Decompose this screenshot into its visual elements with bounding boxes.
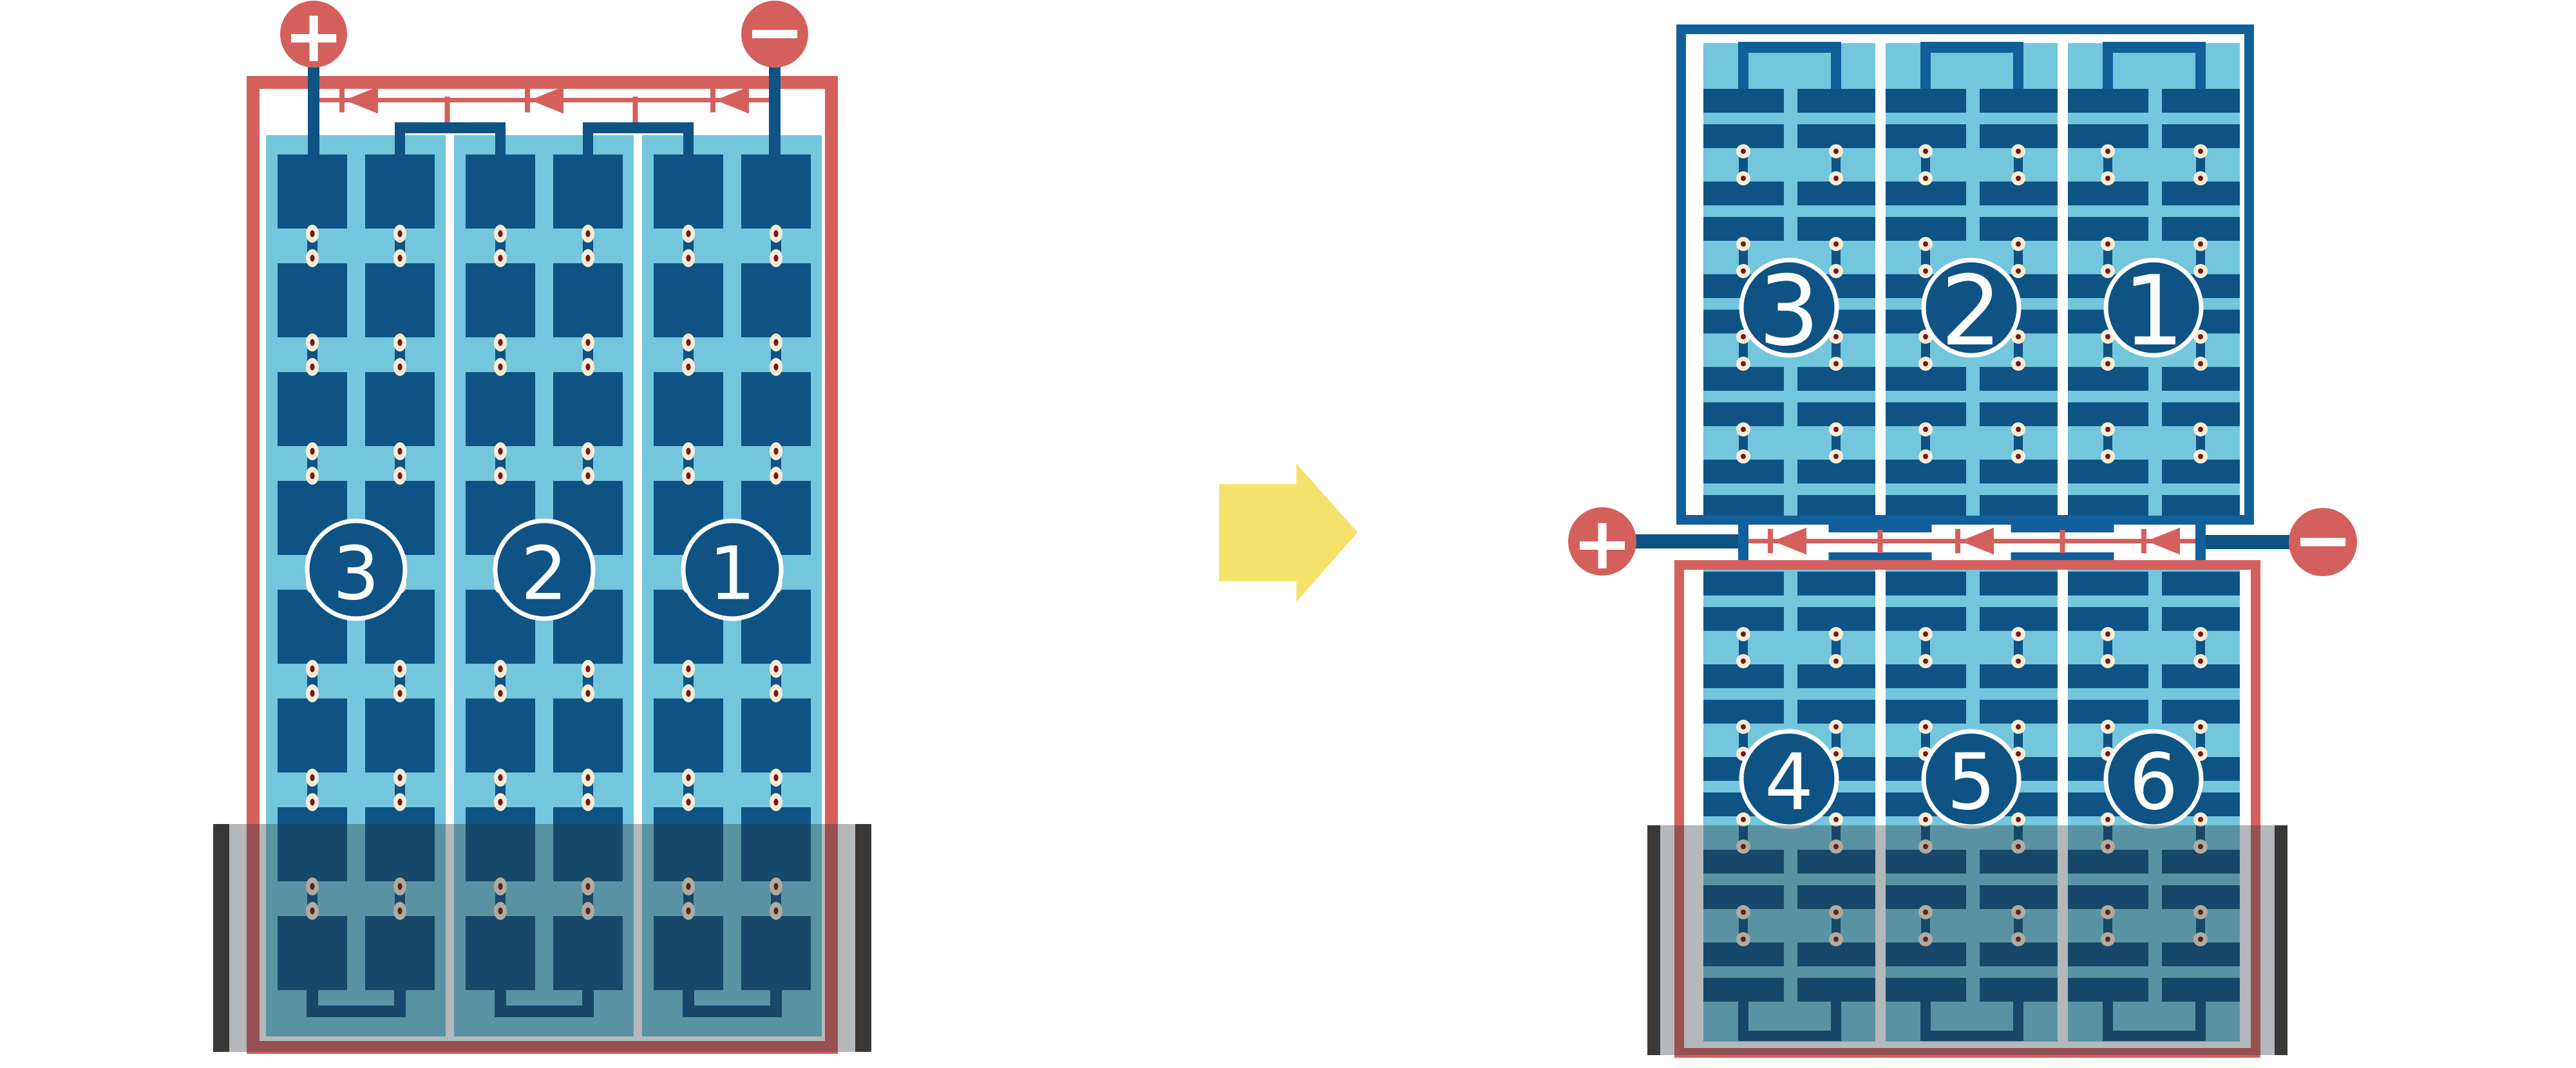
terminal-wire [1634,534,1738,548]
solder-joint-core [2198,454,2203,459]
plus-terminal-label: + [283,0,344,79]
solder-joint-core [1833,751,1839,756]
string-bridge-top [495,132,506,156]
diode-tap [633,97,638,122]
right-negative-terminal: − [2289,498,2357,582]
solder-joint-core [397,230,402,238]
solder-joint-core [2016,632,2021,637]
solar-cell [553,698,623,773]
solder-joint-core [2016,268,2021,274]
solar-cell [1980,495,2058,516]
solar-cell [553,372,623,446]
solder-joint-core [310,364,314,371]
solder-joint-core [773,230,778,238]
solder-joint-core [1833,659,1839,664]
solder-joint-core [1833,632,1839,637]
bypass-diode-symbol [525,88,530,113]
solder-joint-core [1923,659,1928,664]
solder-joint-core [1923,427,1928,432]
junction-tab [2195,525,2206,560]
solar-cell [1797,89,1875,113]
module-wire-frame [2244,24,2254,525]
diode-tap [2060,530,2065,553]
terminal-wire [769,59,781,167]
solder-joint-core [1923,454,1928,459]
string-bridge-top [1920,42,2023,53]
solder-joint-core [498,666,502,673]
solder-joint-core [2016,176,2021,181]
shade-edge-bar [855,824,871,1052]
solder-joint-core [1833,334,1839,339]
module-wire-frame [1676,24,2254,34]
bypass-diode-symbol [2141,529,2146,554]
string-badge-number: 6 [2129,738,2178,828]
solder-joint-core [310,339,314,346]
solder-joint-core [2198,659,2203,664]
solder-joint-core [498,339,502,346]
solder-joint-core [2198,176,2203,181]
solder-joint-core [773,774,778,782]
minus-terminal-label: − [2293,498,2353,582]
solar-cell [2068,495,2148,516]
solder-joint-core [2105,427,2110,432]
solder-joint-core [2198,817,2203,822]
solder-joint-core [2016,454,2021,459]
solar-cell [1797,572,1875,595]
solder-joint-core [1741,427,1746,432]
solder-joint-core [2198,361,2203,366]
solder-joint-core [1741,632,1746,637]
solder-joint-core [585,255,590,262]
solar-cell [2162,572,2240,595]
shade-edge-bar [213,824,229,1052]
solder-joint-core [1923,149,1928,154]
solar-cell [278,698,347,773]
solder-joint-core [773,666,778,673]
solder-joint-core [310,799,314,806]
solder-joint-core [310,255,314,262]
solar-cell [553,263,623,337]
module-wire-frame [1676,515,2254,525]
right-positive-terminal: + [1568,502,1636,586]
string-badge-number: 1 [709,531,756,617]
solar-cell [741,698,811,773]
solder-joint-core [1923,334,1928,339]
bypass-diode-symbol [345,87,378,114]
solder-joint-core [686,774,690,782]
solder-joint-core [2105,632,2110,637]
solar-cell [2068,572,2148,595]
solar-cell [654,155,723,229]
solder-joint-core [2016,361,2021,366]
solar-wiring-diagram: + − 3 2 1 3 2 1 + − [0,0,2576,1068]
solder-joint-core [1923,241,1928,247]
solder-joint-core [585,774,590,782]
solar-cell [278,263,347,337]
bypass-diode-symbol [530,87,563,114]
solder-joint-core [310,448,314,455]
string-badge-number: 4 [1765,738,1814,828]
solder-joint-core [498,448,502,455]
solder-joint-core [397,255,402,262]
minus-terminal-label: − [744,0,805,74]
right-shade-overlay [1647,825,2287,1055]
left-string-badge-2: 2 [495,521,593,619]
string-bridge-top [1920,52,1931,89]
solder-joint-core [498,230,502,238]
solder-joint-core [397,473,402,480]
solar-cell [365,372,435,446]
solder-joint-core [686,473,690,480]
junction-bus [2011,552,2114,560]
figure-canvas: + − 3 2 1 3 2 1 + − [0,0,2576,1068]
solder-joint-core [1741,268,1746,274]
solder-joint-core [585,473,590,480]
solder-joint-core [686,448,690,455]
diode-tap [1878,530,1883,553]
solder-joint-core [585,690,590,697]
solder-joint-core [585,364,590,371]
solar-cell [1980,572,2058,595]
solder-joint-core [397,690,402,697]
terminal-wire [2206,535,2293,549]
solder-joint-core [1833,454,1839,459]
solder-joint-core [1923,632,1928,637]
solder-joint-core [310,774,314,782]
solar-cell [1797,495,1875,516]
module-wire-frame [1674,560,2260,570]
string-bridge-top [2103,42,2206,53]
solar-cell [553,155,623,229]
solder-joint-core [585,448,590,455]
solar-cell [365,155,435,229]
bypass-diode-symbol [1768,529,1773,554]
solar-cell [2068,89,2148,113]
solder-joint-core [1741,176,1746,181]
solder-joint-core [1741,149,1746,154]
shade-band [213,824,871,1052]
solder-joint-core [2105,724,2110,729]
solder-joint-core [498,799,502,806]
solar-cell [466,263,535,337]
solder-joint-core [1833,149,1839,154]
string-bridge-top [1738,52,1748,89]
left-module-bypass-diodes [319,87,775,123]
solder-joint-core [2016,724,2021,729]
solar-cell [654,698,723,773]
solder-joint-core [2198,334,2203,339]
solder-joint-core [686,690,690,697]
solder-joint-core [585,339,590,346]
solar-cell [1980,89,2058,113]
solder-joint-core [498,473,502,480]
solder-joint-core [310,690,314,697]
solder-joint-core [773,690,778,697]
solder-joint-core [2198,751,2203,756]
solder-joint-core [585,230,590,238]
string-bridge-top [2195,52,2206,89]
string-bridge-top [2013,52,2023,89]
solder-joint-core [2016,817,2021,822]
solder-joint-core [1833,817,1839,822]
solder-joint-core [310,230,314,238]
bypass-diode-symbol [2146,528,2180,555]
right-bottom-string-badge-5: 5 [1924,731,2019,828]
right-bottom-string-badge-6: 6 [2106,731,2201,828]
solder-joint-core [686,230,690,238]
solder-joint-core [1833,724,1839,729]
bypass-diode-symbol [339,88,345,113]
solder-joint-core [585,666,590,673]
string-bridge-top [395,122,506,133]
solder-joint-core [397,774,402,782]
solder-joint-core [1923,361,1928,366]
solder-joint-core [2105,334,2110,339]
solar-cell [278,372,347,446]
solder-joint-core [397,364,402,371]
left-string-badge-3: 3 [307,521,405,619]
solder-joint-core [773,255,778,262]
solder-joint-core [2198,149,2203,154]
solder-joint-core [397,666,402,673]
string-bridge-top [395,132,405,156]
string-bridge-top [1831,52,1841,89]
solar-cell [1703,89,1784,113]
solder-joint-core [686,364,690,371]
solder-joint-core [2198,241,2203,247]
string-bridge-top [583,132,593,156]
solar-cell [654,372,723,446]
right-junction-box [1634,525,2293,560]
solar-cell [741,263,811,337]
solder-joint-core [1833,176,1839,181]
string-bridge-top [583,122,694,133]
left-positive-terminal: + [280,0,347,79]
string-badge-number: 2 [1940,256,2002,368]
solar-cell [1703,495,1784,516]
solder-joint-core [2105,454,2110,459]
solder-joint-core [1923,724,1928,729]
left-string-badge-1: 1 [683,521,781,619]
shade-edge-bar [1647,825,1660,1055]
solder-joint-core [1833,241,1839,247]
string-bridge-top [2103,52,2113,89]
solder-joint-core [2198,427,2203,432]
solder-joint-core [498,255,502,262]
solar-cell [654,263,723,337]
solder-joint-core [2105,361,2110,366]
solder-joint-core [773,448,778,455]
solar-cell [1886,495,1966,516]
string-bridge-top [683,132,694,156]
bypass-diode-symbol [715,87,749,114]
solder-joint-core [585,799,590,806]
solar-cell [466,155,535,229]
plus-terminal-label: + [1572,502,1633,586]
solar-cell [365,263,435,337]
solder-joint-core [397,448,402,455]
string-badge-number: 1 [2123,256,2184,368]
solder-joint-core [1923,268,1928,274]
right-bottom-string-badge-4: 4 [1741,731,1837,828]
solder-joint-core [1741,334,1746,339]
solder-joint-core [2016,751,2021,756]
solder-joint-core [2105,176,2110,181]
solder-joint-core [1833,268,1839,274]
solder-joint-core [1741,724,1746,729]
solder-joint-core [2105,149,2110,154]
solder-joint-core [686,666,690,673]
solder-joint-core [686,799,690,806]
solder-joint-core [1923,817,1928,822]
solder-joint-core [2105,268,2110,274]
solder-joint-core [1923,176,1928,181]
solar-cell [741,372,811,446]
left-negative-terminal: − [741,0,808,74]
solder-joint-core [686,255,690,262]
solder-joint-core [2105,817,2110,822]
solar-cell [1886,89,1966,113]
solder-joint-core [498,774,502,782]
solder-joint-core [1741,454,1746,459]
solder-joint-core [310,473,314,480]
string-badge-number: 3 [1758,256,1819,368]
diode-tap [445,97,450,122]
solder-joint-core [2016,659,2021,664]
solder-joint-core [397,339,402,346]
transition-arrow-icon [1219,464,1358,602]
solder-joint-core [2105,659,2110,664]
solar-cell [2162,495,2240,516]
solder-joint-core [1741,817,1746,822]
bypass-diode-symbol [710,88,715,113]
module-wire-frame [1676,24,1686,525]
solder-joint-core [2198,268,2203,274]
solder-joint-core [1833,361,1839,366]
solder-joint-core [310,666,314,673]
solder-joint-core [498,364,502,371]
solder-joint-core [686,339,690,346]
junction-tab [1738,525,1748,560]
string-badge-number: 5 [1947,738,1996,828]
solder-joint-core [2198,632,2203,637]
solar-cell [466,698,535,773]
solder-joint-core [2105,241,2110,247]
solder-joint-core [2198,724,2203,729]
solder-joint-core [1833,427,1839,432]
solder-joint-core [2016,427,2021,432]
string-badge-number: 2 [521,531,568,617]
solder-joint-core [773,364,778,371]
solar-cell [2162,89,2240,113]
string-bridge-top [1738,42,1841,53]
left-shade-overlay [213,824,871,1052]
solar-cell [1703,572,1784,595]
solar-cell [365,698,435,773]
solder-joint-core [773,339,778,346]
shade-edge-bar [2275,825,2287,1055]
solder-joint-core [2016,241,2021,247]
solder-joint-core [2016,334,2021,339]
string-badge-number: 3 [333,531,380,617]
junction-bus [1829,552,1932,560]
solder-joint-core [1741,241,1746,247]
solder-joint-core [773,799,778,806]
bypass-diode-symbol [1960,528,1994,555]
solder-joint-core [2016,149,2021,154]
solar-cell [1886,572,1966,595]
solder-joint-core [397,799,402,806]
solder-joint-core [773,473,778,480]
solder-joint-core [498,690,502,697]
solar-cell [466,372,535,446]
shade-band [1647,825,2287,1055]
bypass-diode-symbol [1955,529,1960,554]
solder-joint-core [1741,361,1746,366]
bypass-diode-symbol [1773,528,1806,555]
solder-joint-core [1741,659,1746,664]
